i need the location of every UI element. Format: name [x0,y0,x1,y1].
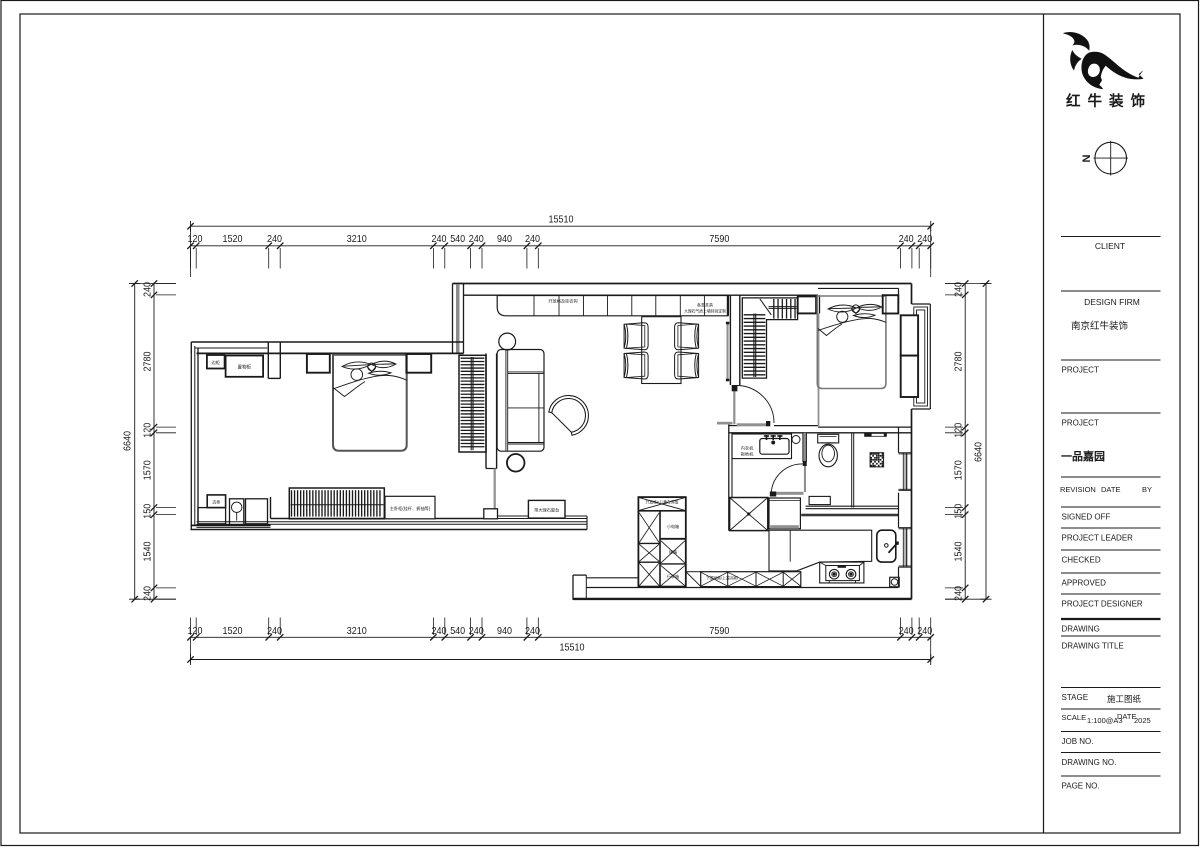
svg-text:120: 120 [188,625,203,637]
svg-text:240: 240 [469,233,484,245]
svg-text:主卧柜(挂杆、裤抽等): 主卧柜(挂杆、裤抽等) [390,505,431,512]
svg-text:940: 940 [497,625,512,637]
svg-text:南京红牛装饰: 南京红牛装饰 [1071,320,1128,332]
svg-text:240: 240 [432,233,447,245]
svg-text:带大理石窗台: 带大理石窗台 [534,507,559,514]
svg-text:红 牛 装 饰: 红 牛 装 饰 [1066,92,1147,110]
svg-text:CHECKED: CHECKED [1062,556,1101,565]
svg-text:120: 120 [953,423,965,438]
svg-text:PROJECT LEADER: PROJECT LEADER [1062,534,1134,543]
svg-text:施工图纸: 施工图纸 [1107,694,1142,704]
svg-text:6640: 6640 [122,431,134,451]
svg-text:1570: 1570 [953,460,965,480]
svg-text:240: 240 [917,233,932,245]
svg-text:BY: BY [1142,485,1152,494]
svg-text:DATE: DATE [1101,485,1120,494]
svg-text:240: 240 [525,233,540,245]
svg-text:3210: 3210 [347,625,367,637]
svg-text:N: N [1081,154,1093,162]
svg-text:240: 240 [917,625,932,637]
svg-text:下是地柜上是吊柜: 下是地柜上是吊柜 [706,575,738,581]
svg-text:540: 540 [450,625,465,637]
svg-text:1540: 1540 [953,541,965,561]
svg-text:内衣机: 内衣机 [741,445,754,452]
svg-text:DRAWING: DRAWING [1062,625,1100,634]
svg-text:SIGNED OFF: SIGNED OFF [1062,513,1111,522]
svg-text:2780: 2780 [142,351,154,371]
svg-text:240: 240 [142,282,154,297]
svg-text:DESIGN FIRM: DESIGN FIRM [1084,297,1140,307]
svg-text:240: 240 [953,586,965,601]
svg-text:1570: 1570 [142,460,154,480]
svg-text:行李箱: 行李箱 [667,573,679,579]
svg-text:240: 240 [469,625,484,637]
svg-text:2025: 2025 [1134,716,1151,725]
svg-text:边柜: 边柜 [212,498,220,504]
svg-text:DRAWING NO.: DRAWING NO. [1062,758,1117,767]
svg-text:开放格&儿童车停放: 开放格&儿童车停放 [646,500,679,505]
svg-text:7590: 7590 [709,233,729,245]
svg-text:开放格及挂衣钩: 开放格及挂衣钩 [548,298,577,305]
svg-text:15510: 15510 [549,214,574,226]
svg-text:PROJECT: PROJECT [1062,419,1099,428]
svg-text:240: 240 [267,625,282,637]
svg-text:REVISION: REVISION [1060,485,1096,494]
svg-text:STAGE: STAGE [1062,693,1089,702]
svg-text:240: 240 [142,586,154,601]
svg-text:120: 120 [188,233,203,245]
svg-text:150: 150 [142,504,154,519]
svg-text:240: 240 [899,233,914,245]
svg-text:3210: 3210 [347,233,367,245]
svg-text:150: 150 [953,504,965,519]
svg-text:240: 240 [432,625,447,637]
svg-text:6640: 6640 [973,442,985,462]
svg-text:各类茶具: 各类茶具 [697,302,713,308]
svg-text:1540: 1540 [142,541,154,561]
svg-text:CLIENT: CLIENT [1095,241,1125,251]
svg-text:PROJECT DESIGNER: PROJECT DESIGNER [1062,600,1143,609]
svg-text:540: 540 [450,233,465,245]
svg-text:拖地机: 拖地机 [741,451,754,458]
svg-text:7590: 7590 [709,625,729,637]
svg-text:PAGE NO.: PAGE NO. [1062,782,1100,791]
svg-text:烤箱: 烤箱 [669,549,677,555]
svg-text:一品嘉园: 一品嘉园 [1061,449,1105,463]
svg-text:SCALE: SCALE [1062,713,1087,722]
svg-text:240: 240 [899,625,914,637]
svg-text:1520: 1520 [223,625,243,637]
svg-text:940: 940 [497,233,512,245]
svg-text:1520: 1520 [223,233,243,245]
svg-text:240: 240 [267,233,282,245]
svg-text:PROJECT: PROJECT [1062,366,1099,375]
svg-text:240: 240 [953,282,965,297]
svg-text:置物柜: 置物柜 [238,364,252,371]
svg-text:2780: 2780 [953,351,965,371]
svg-text:240: 240 [525,625,540,637]
svg-text:大理石气质上墙特别定制: 大理石气质上墙特别定制 [684,309,726,314]
svg-text:边柜: 边柜 [212,359,220,366]
svg-text:小电箱: 小电箱 [667,523,679,529]
svg-text:JOB NO.: JOB NO. [1062,737,1094,746]
svg-text:DRAWING TITLE: DRAWING TITLE [1062,642,1124,651]
svg-text:120: 120 [142,423,154,438]
svg-text:APPROVED: APPROVED [1062,579,1107,588]
svg-text:15510: 15510 [560,642,585,654]
